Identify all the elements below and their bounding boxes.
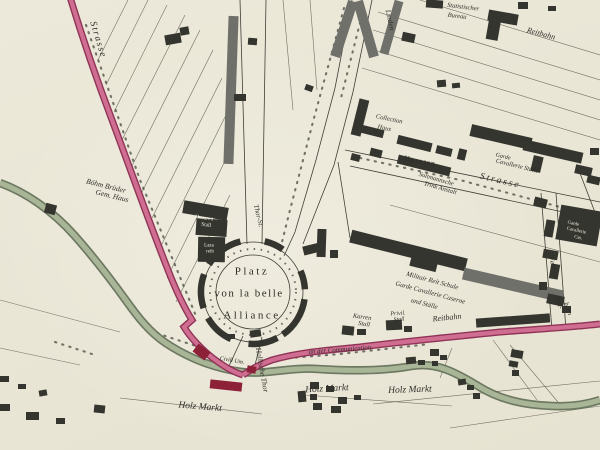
building <box>342 325 355 335</box>
building <box>354 395 361 400</box>
building <box>530 155 543 173</box>
plaza-circle-shape <box>265 241 283 249</box>
building <box>195 218 227 237</box>
plaza-name-line2: von la belle <box>214 289 283 300</box>
building <box>544 219 556 237</box>
building <box>404 326 412 332</box>
building <box>310 382 319 389</box>
parcel-lines-shape <box>420 0 600 55</box>
plaza-circle-shape <box>249 338 278 344</box>
plaza-circle-shape <box>301 271 305 290</box>
building <box>401 32 416 44</box>
plaza-circle-shape <box>201 274 204 308</box>
canal <box>0 183 600 406</box>
building <box>182 200 229 221</box>
building <box>94 404 106 413</box>
building <box>539 282 547 290</box>
building <box>349 230 468 271</box>
building <box>510 349 523 359</box>
parcel-lines-shape <box>305 395 452 406</box>
building <box>39 389 48 396</box>
building <box>0 404 10 411</box>
building <box>467 385 474 390</box>
parcel-lines-shape <box>140 50 213 196</box>
building <box>426 0 444 9</box>
gate-building <box>210 379 243 391</box>
tree-rows-shape <box>55 342 92 354</box>
building <box>452 83 460 89</box>
building <box>542 249 558 260</box>
building <box>458 378 467 385</box>
parcel-lines-shape <box>131 30 200 168</box>
building <box>437 80 447 88</box>
building <box>435 145 452 157</box>
building <box>56 418 65 424</box>
building <box>350 153 360 162</box>
map-canvas <box>0 0 600 450</box>
street-edges-shape <box>338 162 350 238</box>
building <box>369 148 383 159</box>
parcel-lines-shape <box>98 0 128 60</box>
canal-shape <box>0 183 600 406</box>
building <box>555 205 600 247</box>
building <box>430 349 439 356</box>
building <box>179 26 189 35</box>
building <box>331 406 341 413</box>
building <box>298 391 307 403</box>
historical-city-map: Platz von la belle Alliance StrasseBöhm … <box>0 0 600 450</box>
wall-road-west <box>70 0 243 375</box>
building <box>18 384 26 389</box>
parcel-lines-shape <box>310 0 317 90</box>
building <box>386 320 403 331</box>
parcel-lines-shape <box>106 0 148 85</box>
building <box>549 263 560 279</box>
building <box>396 135 432 152</box>
parcel-lines-shape <box>114 5 167 112</box>
plaza-circle-shape <box>283 299 305 334</box>
street-edges-shape <box>541 193 552 330</box>
building <box>432 361 438 366</box>
building <box>310 394 317 400</box>
building <box>248 38 257 46</box>
building <box>548 6 556 11</box>
building <box>418 360 425 365</box>
wall-road-west-shape <box>70 0 243 375</box>
building <box>476 313 550 327</box>
building <box>164 33 181 46</box>
parcel-lines-shape <box>368 48 600 120</box>
building <box>518 2 528 9</box>
parcel-lines-shape <box>0 300 120 332</box>
parcel-lines-shape <box>283 0 293 110</box>
building <box>512 370 519 376</box>
parcel-lines-shape <box>0 348 80 365</box>
building <box>357 329 366 335</box>
street-edges-shape <box>262 0 266 244</box>
street-edges-shape <box>240 0 247 244</box>
building <box>509 360 519 367</box>
building <box>533 197 548 209</box>
building <box>313 403 322 410</box>
building <box>440 355 447 360</box>
building <box>473 393 480 399</box>
building <box>562 306 571 313</box>
building <box>234 94 246 101</box>
building <box>523 139 584 163</box>
parcel-lines-shape <box>120 398 262 414</box>
building <box>317 229 327 257</box>
building <box>0 376 9 382</box>
building <box>223 16 238 164</box>
building <box>26 412 39 420</box>
building <box>469 124 532 150</box>
building <box>397 155 452 177</box>
building <box>250 329 262 337</box>
building <box>457 148 467 161</box>
building <box>338 397 347 404</box>
plaza-name-line3: Alliance <box>223 311 280 322</box>
building <box>326 386 334 392</box>
building <box>586 175 600 186</box>
wall-road-west-shape <box>70 0 243 375</box>
plaza-name-line1: Platz <box>235 267 270 278</box>
building <box>574 164 593 177</box>
tree-rows-shape <box>360 158 560 207</box>
building <box>330 250 338 258</box>
building <box>353 0 379 58</box>
building <box>356 124 384 138</box>
building <box>304 84 314 92</box>
building <box>590 148 599 155</box>
building <box>406 357 417 365</box>
building <box>380 0 404 55</box>
